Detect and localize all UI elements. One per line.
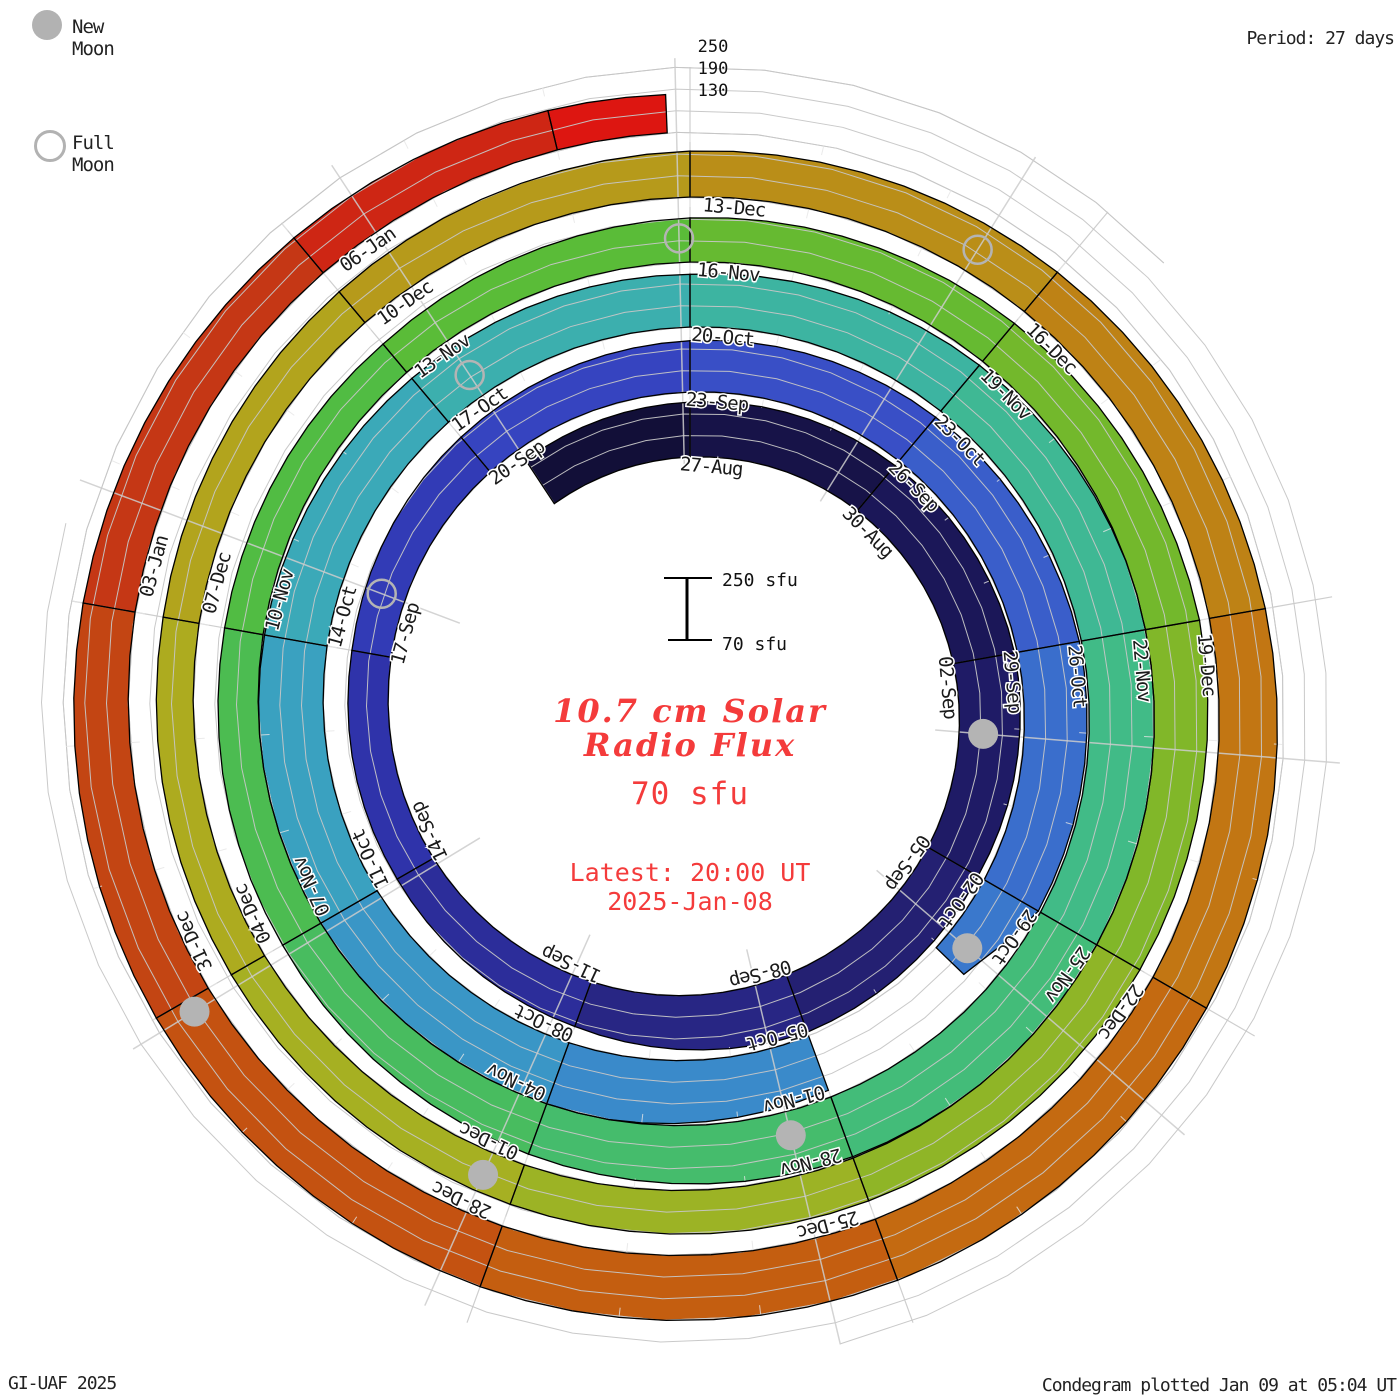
grid-daily-tick [218,849,227,852]
grid-daily-tick [1190,860,1199,863]
grid-daily-tick [287,410,294,415]
grid-daily-tick [183,332,190,337]
baseline-flux-label: 70 sfu [340,776,1040,812]
grid-daily-tick [282,224,288,231]
radial-axis-label-250: 250 [698,37,729,57]
latest-reading: Latest: 20:00 UT 2025-Jan-08 [340,858,1040,916]
grid-daily-tick [521,373,525,381]
grid-daily-tick [752,1241,753,1250]
grid-daily-tick [822,146,824,155]
grid-daily-tick [910,1044,915,1052]
grid-daily-tick [423,1108,428,1116]
grid-daily-tick [627,1243,628,1252]
credit-label: GI-UAF 2025 [8,1373,116,1394]
grid-daily-tick [792,273,794,282]
grid-daily-tick [918,248,922,256]
grid-daily-tick [1144,736,1153,737]
flux-scale-bar: 250 sfu 70 sfu [664,570,798,655]
grid-daily-tick [1060,262,1066,269]
grid-daily-tick [492,315,496,323]
grid-daily-tick [261,734,270,735]
grid-daily-tick [602,341,604,350]
radial-axis-labels: 250 190 130 [698,37,729,101]
latest-time: Latest: 20:00 UT [340,858,1040,887]
radial-axis-label-190: 190 [698,59,729,79]
grid-daily-tick [430,949,437,955]
grid-daily-tick [171,486,179,490]
grid-daily-tick [1101,399,1108,404]
grid-daily-tick [872,1210,875,1218]
grid-daily-tick [350,563,358,567]
grid-daily-tick [1163,502,1171,506]
grid-daily-tick [235,371,242,376]
new-moon-icon [32,10,62,40]
radial-axis-label-130: 130 [698,81,729,101]
grid-daily-tick [777,336,779,345]
grid-daily-tick [947,190,951,198]
flux-band-segment [548,95,667,150]
grid-daily-tick [156,867,165,870]
scale-bar-bottom-label: 70 sfu [722,634,787,655]
grid-daily-tick [572,214,574,223]
grid-daily-tick [462,257,466,265]
grid-daily-tick [265,951,273,956]
grid-daily-tick [1223,477,1231,481]
grid-daily-tick [495,1000,500,1008]
grid-daily-tick [525,1156,528,1164]
grid-daily-tick [112,460,120,464]
grid-daily-tick [404,141,408,149]
new-moon-marker [468,1160,498,1190]
grid-daily-tick [1209,740,1218,741]
new-moon-marker [180,997,210,1027]
full-moon-icon [34,130,66,162]
scale-bar-top-label: 250 sfu [722,570,798,591]
grid-daily-tick [325,731,334,732]
grid-daily-tick [1274,744,1283,745]
grid-daily-tick [979,982,986,988]
latest-date: 2025-Jan-08 [340,887,1040,916]
chart-title-line2: Radio Flux [340,728,1040,762]
period-label: Period: 27 days [1246,28,1394,49]
grid-daily-tick [433,199,437,207]
grid-daily-tick [335,1039,342,1045]
plotted-timestamp: Condegram plotted Jan 09 at 05:04 UT [1042,1375,1396,1396]
grid-daily-tick [1073,1072,1080,1078]
new-moon-label: New Moon [72,16,114,60]
new-moon-marker [776,1120,806,1150]
grid-daily-tick [231,512,239,516]
date-label: 27-Aug [679,453,743,480]
grid-daily-tick [542,88,544,97]
grid-daily-tick [557,151,559,160]
grid-daily-tick [288,1083,295,1089]
grid-daily-tick [66,746,75,747]
grid-daily-tick [209,983,217,988]
grid-daily-tick [324,274,330,281]
full-moon-label: Full Moon [72,132,114,176]
grid-daily-tick [1144,972,1152,977]
grid-radial-tick [1209,1010,1254,1036]
grid-daily-tick [503,1217,506,1225]
grid-radial-tick [1273,597,1332,607]
grid-daily-tick [1018,312,1024,319]
grid-daily-tick [196,738,205,739]
grid-daily-tick [649,1049,650,1058]
chart-title: 10.7 cm Solar Radio Flux [340,694,1040,762]
grid-daily-tick [807,209,809,218]
new-moon-marker [952,933,982,963]
grid-daily-tick [587,277,589,286]
chart-title-line1: 10.7 cm Solar [340,694,1040,728]
grid-daily-tick [387,1162,392,1170]
grid-daily-tick [391,488,398,493]
grid-daily-tick [366,323,372,330]
condegram-page: 27-Aug30-Aug02-Sep05-Sep08-Sep11-Sep14-S… [0,0,1400,1400]
grid-daily-tick [1153,360,1160,365]
grid-daily-tick [131,742,140,743]
grid-daily-tick [860,364,864,372]
grid-daily-tick [981,1152,986,1160]
